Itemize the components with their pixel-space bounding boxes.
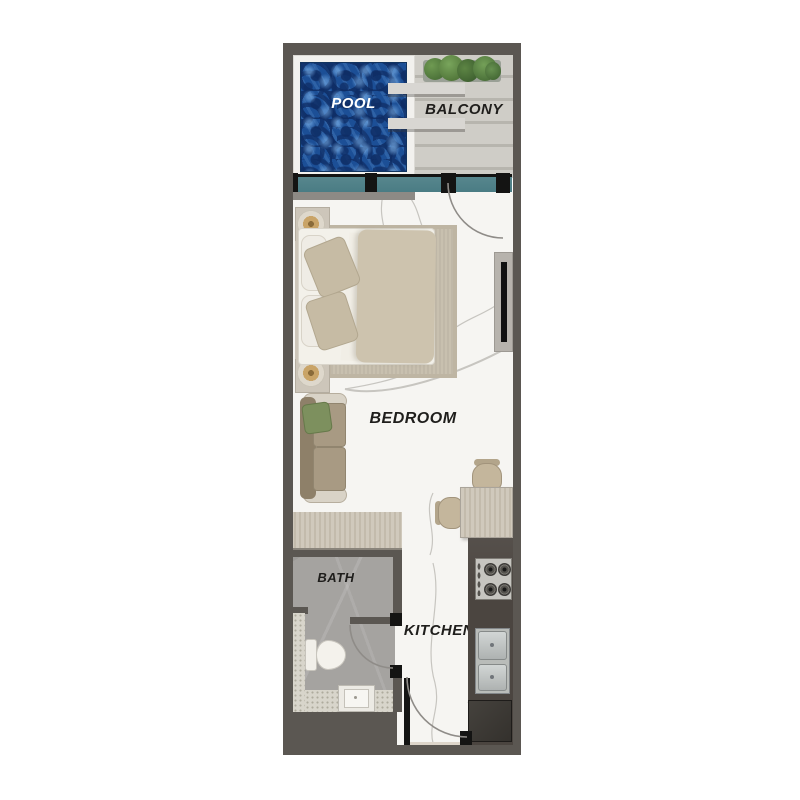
- pool: [300, 62, 407, 172]
- bottom-wall: [283, 745, 521, 755]
- left-wall: [283, 43, 293, 755]
- bath-label: BATH: [301, 570, 371, 585]
- top-wall: [283, 43, 521, 55]
- vanity-drain: [354, 696, 357, 699]
- stove-knobs: [477, 562, 481, 596]
- sink-drain: [490, 675, 494, 679]
- burner-icon: [484, 563, 497, 576]
- door-jamb: [390, 665, 402, 678]
- dining-table: [460, 487, 513, 538]
- bottom-wall: [283, 712, 397, 745]
- window-mullion: [365, 173, 377, 193]
- interior-wall: [393, 678, 402, 712]
- entrance-door: [404, 678, 410, 748]
- wardrobe: [291, 512, 402, 550]
- bath-tile-border: [305, 690, 338, 712]
- shower-tile: [293, 613, 305, 712]
- sofa-seat: [313, 447, 346, 491]
- bed-duvet: [356, 229, 436, 363]
- pool-step: [388, 83, 465, 94]
- sofa-pillow: [301, 401, 333, 435]
- stove: [475, 558, 512, 600]
- burner-icon: [498, 563, 511, 576]
- window-mullion: [496, 173, 510, 193]
- kitchen-sink: [475, 628, 510, 694]
- window-mullion: [441, 173, 456, 193]
- tv-icon: [501, 262, 507, 342]
- burner-icon: [484, 583, 497, 596]
- pool-label: POOL: [300, 95, 407, 112]
- bedroom-label: BEDROOM: [353, 410, 473, 428]
- window-sill: [288, 192, 415, 200]
- right-wall: [513, 43, 521, 755]
- window-glass: [288, 177, 512, 192]
- bath-door: [350, 617, 393, 624]
- burner-icon: [498, 583, 511, 596]
- balcony-label: BALCONY: [415, 101, 513, 118]
- kitchen-label: KITCHEN: [403, 622, 475, 639]
- door-jamb: [390, 613, 402, 626]
- fridge: [468, 700, 512, 742]
- sink-drain: [490, 643, 494, 647]
- floor-plan: POOL BALCONY BEDROOM: [283, 43, 521, 755]
- interior-wall: [393, 557, 402, 613]
- pool-step: [388, 118, 465, 129]
- bath-tile-border: [375, 690, 395, 712]
